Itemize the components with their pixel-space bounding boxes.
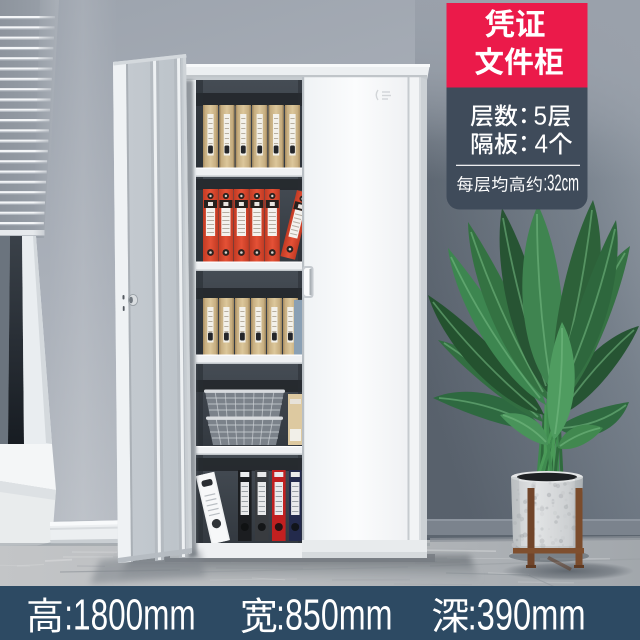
svg-text::32cm: :32cm	[544, 170, 580, 196]
svg-text:4: 4	[535, 131, 549, 159]
svg-text:5: 5	[534, 103, 548, 131]
svg-text::390mm: :390mm	[468, 591, 586, 640]
svg-text::1800mm: :1800mm	[64, 591, 195, 640]
svg-text::850mm: :850mm	[276, 591, 393, 640]
